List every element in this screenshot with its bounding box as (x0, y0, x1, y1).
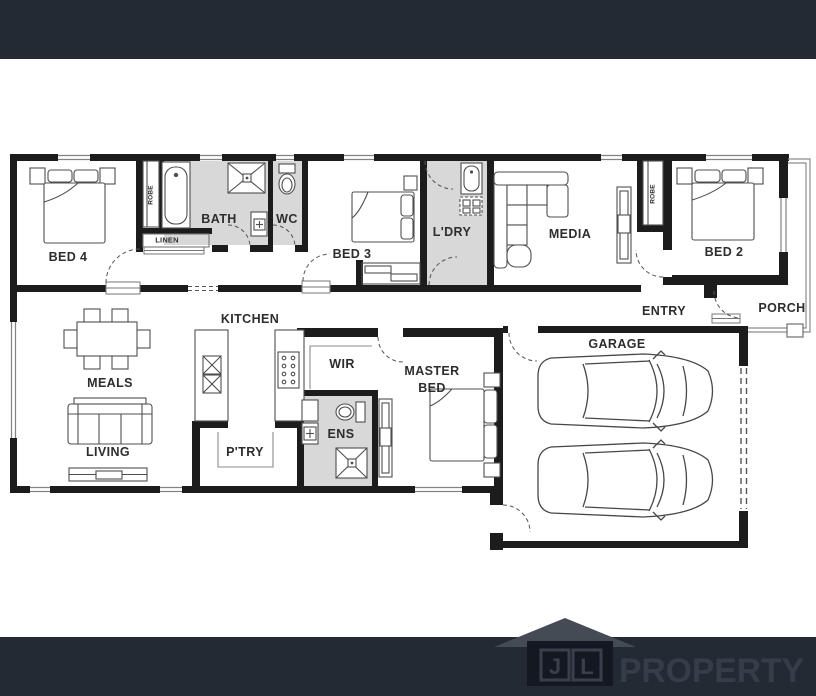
label-media: MEDIA (549, 227, 591, 241)
label-linen: LINEN (155, 236, 179, 245)
wall-island-stub (192, 421, 228, 428)
label-meals: MEALS (87, 376, 133, 390)
label-bed4: BED 4 (49, 250, 88, 264)
window-bed2-right (779, 198, 788, 252)
window-bath-top (200, 154, 222, 161)
garage-rear-door-gap (490, 505, 503, 533)
wall-bath-bottom-a (212, 245, 228, 252)
label-porch: PORCH (758, 301, 805, 315)
laundry-sink-icon (461, 163, 482, 194)
window-media-top (601, 154, 622, 161)
wall-bed3-ldry (420, 154, 427, 285)
brand-logo: J L PROPERTY (494, 618, 804, 690)
wall-wir-ens-divider (304, 390, 378, 396)
wall-garage-bottom (490, 541, 747, 548)
logo-name: PROPERTY (619, 652, 804, 690)
wall-linen-left (136, 226, 143, 252)
bath-vanity-icon (251, 212, 267, 236)
top-banner (0, 0, 816, 59)
ens-toilet-icon (336, 402, 365, 422)
label-pantry: P'TRY (226, 445, 264, 459)
media-cabinet-icon (617, 187, 631, 263)
ens-shower-icon (336, 448, 367, 478)
living-sofa-icon (68, 398, 152, 444)
bathtub-icon (162, 162, 190, 228)
linen-sliding-door (144, 247, 204, 254)
label-wir: WIR (329, 357, 355, 371)
floorplan-page: J L PROPERTY BED 4 BATH WC BED 3 L'DRY M… (0, 0, 816, 696)
bed4-icon (30, 168, 115, 243)
bed2-door-gap (663, 250, 672, 277)
wall-wc-right (302, 160, 308, 252)
wall-bath-bottom-b (250, 245, 273, 252)
door-arc-master (378, 337, 403, 362)
wall-ldry-media (487, 154, 494, 285)
wall-pantry-left (192, 428, 200, 486)
wall-top (10, 154, 789, 161)
garage-door-gap (508, 326, 538, 333)
label-laundry: L'DRY (433, 225, 472, 239)
logo-letter-l: L (580, 654, 593, 679)
wall-garage-right-top (739, 326, 748, 366)
label-kitchen: KITCHEN (221, 312, 279, 326)
porch-post (787, 324, 803, 337)
threshold-bed3 (302, 281, 330, 293)
label-bed3: BED 3 (333, 247, 372, 261)
label-garage: GARAGE (588, 337, 645, 351)
washer-icon (460, 197, 482, 215)
wall-garage-right-bottom (739, 511, 748, 548)
label-bed2: BED 2 (705, 245, 744, 259)
floorplan-drawing: J L PROPERTY (0, 0, 816, 696)
shower-icon (228, 163, 265, 193)
window-living-2 (160, 486, 182, 493)
door-arc-bed4 (106, 249, 140, 283)
label-ensuite: ENS (328, 427, 355, 441)
wall-media-right (637, 154, 643, 230)
window-wc-top (276, 154, 294, 161)
label-master-line1: MASTER (404, 364, 459, 378)
dining-table-icon (64, 309, 150, 369)
wall-bed2-bottom (663, 275, 788, 285)
label-wc: WC (276, 212, 298, 226)
window-bed4-top (58, 154, 90, 161)
label-bath: BATH (201, 212, 236, 226)
door-arc-bed2 (636, 250, 663, 277)
door-arc-bed3 (303, 254, 330, 281)
wall-garage-top (503, 326, 739, 333)
wall-bath-wc (268, 160, 273, 245)
threshold-bed4 (106, 282, 140, 294)
window-living-1 (30, 486, 50, 493)
wall-robe4-left (136, 160, 143, 230)
wall-bed2-left (663, 154, 672, 250)
bed3-icon (352, 176, 417, 242)
wall-bench-stub (275, 421, 304, 428)
kitchen-island-icon (195, 330, 228, 421)
logo-letter-j: J (549, 654, 561, 679)
label-robe-bed2: ROBE (650, 184, 657, 204)
window-left-wall (10, 322, 17, 438)
threshold-entry (712, 314, 740, 323)
wall-wir-top (297, 328, 378, 337)
master-robe-icon (379, 399, 392, 477)
wall-ens-right (372, 396, 378, 486)
toilet-wc-icon (279, 164, 295, 194)
cooktop-bench-icon (275, 330, 304, 421)
car-icon-2 (538, 440, 713, 520)
window-master-bottom (415, 486, 462, 493)
label-entry: ENTRY (642, 304, 686, 318)
label-living: LIVING (86, 445, 130, 459)
media-sofa-icon (494, 172, 568, 268)
label-robe-bed4: ROBE (148, 185, 155, 205)
car-icon-1 (538, 351, 713, 431)
door-arc-garage-rear (503, 505, 530, 532)
bed2-icon (677, 168, 763, 240)
wall-entry-jamb (704, 285, 717, 298)
label-master-line2: BED (418, 381, 446, 395)
wall-master-top (403, 328, 503, 337)
tv-unit-icon (69, 468, 147, 481)
wall-linen-top (136, 228, 212, 234)
window-bed3-top (344, 154, 374, 161)
door-arc-garage-int (509, 333, 537, 361)
wall-robe2-bottom (637, 225, 663, 232)
window-bed2-top (706, 154, 752, 161)
bed3-robe-icon (362, 263, 420, 284)
